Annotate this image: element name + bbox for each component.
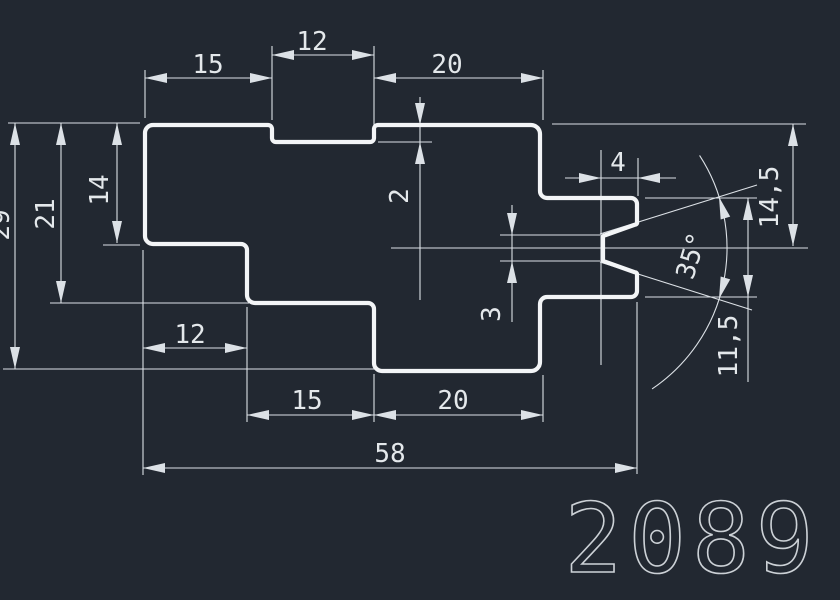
dim-text-4: 4 — [610, 148, 626, 178]
dim-text-115: 11,5 — [714, 315, 744, 378]
dim-text-20: 20 — [431, 50, 462, 80]
dim-text-3: 3 — [477, 306, 507, 322]
dim-text-12: 12 — [296, 27, 327, 57]
dim-text-29: 29 — [0, 209, 16, 240]
technical-drawing: 1512202142129121520584314,511,535° 2089 — [0, 0, 840, 600]
cad-drawing-canvas: 1512202142129121520584314,511,535° 2089 — [0, 0, 840, 600]
dim-text-12: 12 — [174, 320, 205, 350]
dim-text-145: 14,5 — [755, 166, 785, 229]
dim-text-15: 15 — [291, 386, 322, 416]
dim-text-14: 14 — [85, 174, 115, 205]
dim-text-58: 58 — [374, 439, 405, 469]
part-number-text: 2089 — [564, 483, 819, 595]
dim-text-21: 21 — [31, 198, 61, 229]
dim-text-2: 2 — [385, 188, 415, 204]
dim-text-20: 20 — [437, 386, 468, 416]
dim-text-15: 15 — [192, 50, 223, 80]
